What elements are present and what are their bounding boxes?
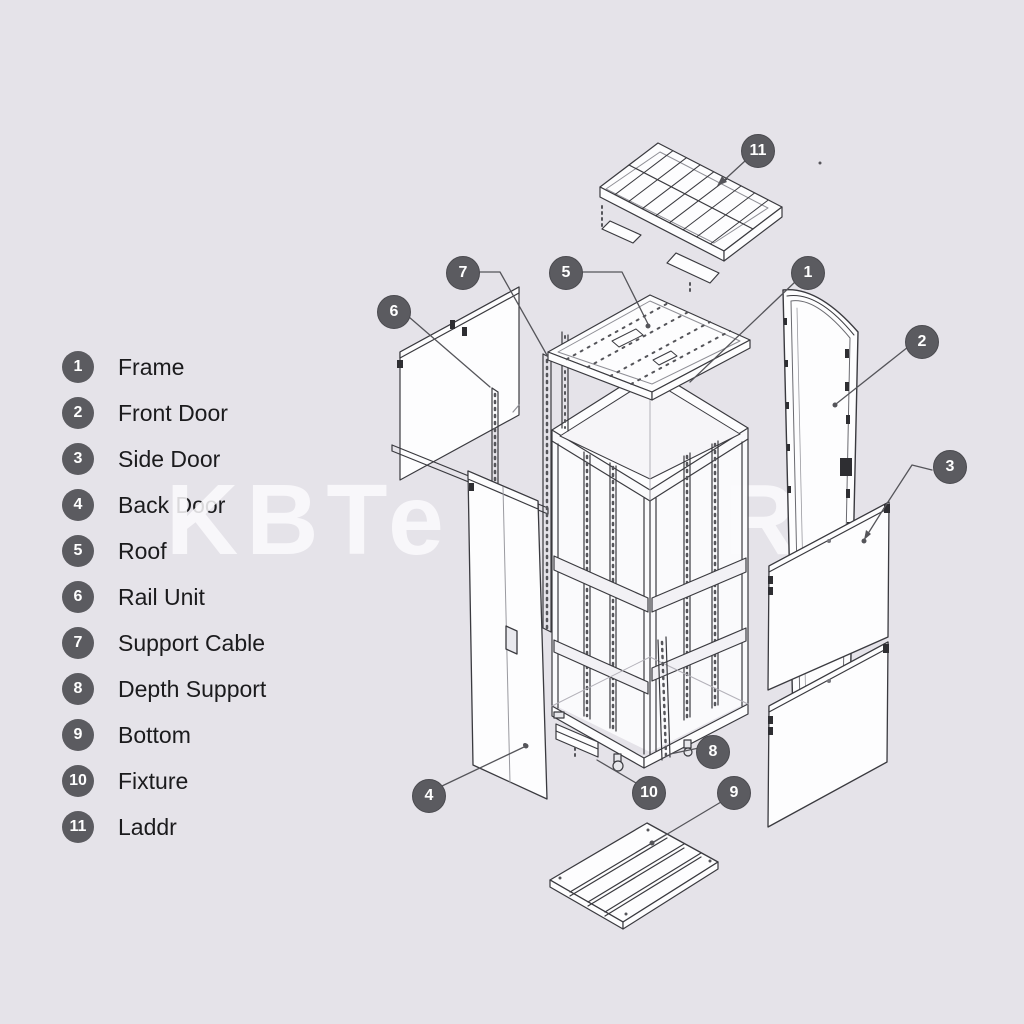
door-handle	[506, 626, 517, 654]
leader-line-9	[654, 802, 721, 842]
rack-exploded-drawing	[0, 0, 1024, 1024]
support-cable	[543, 354, 551, 632]
exploded-view-page: 1Frame2Front Door3Side Door4Back Door5Ro…	[0, 0, 1024, 1024]
rear-side-panel	[397, 287, 519, 480]
bottom-panel	[550, 823, 718, 929]
ladder	[600, 143, 782, 294]
back-door	[468, 471, 547, 799]
door-lock	[840, 458, 852, 476]
roof	[548, 295, 750, 400]
